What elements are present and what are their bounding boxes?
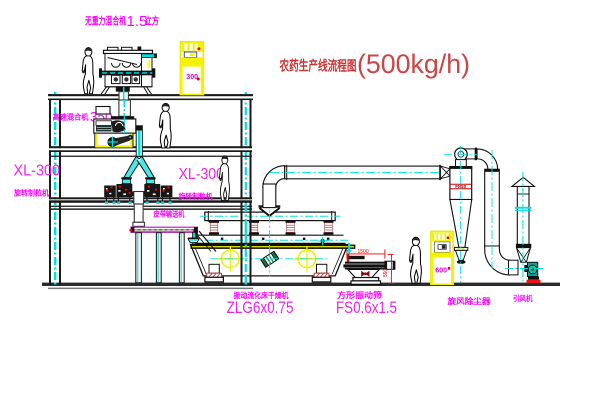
svg-text:旋风除尘器: 旋风除尘器 [446,296,491,306]
svg-text:XL-300: XL-300 [14,163,61,180]
svg-text:FS0.6x1.5: FS0.6x1.5 [336,299,397,317]
svg-text:(500kg/h): (500kg/h) [357,49,470,79]
svg-text:皮带输送机: 皮带输送机 [153,209,185,219]
svg-text:旋转制粒机: 旋转制粒机 [13,188,49,198]
svg-text:590: 590 [383,268,389,277]
svg-text:旋转制粒机: 旋转制粒机 [178,191,213,201]
svg-text:XL-300: XL-300 [179,166,225,183]
svg-text:立方: 立方 [145,15,160,28]
svg-text:农药生产线流程图: 农药生产线流程图 [279,58,357,74]
svg-text:1500: 1500 [358,249,369,255]
svg-text:ZLG6x0.75: ZLG6x0.75 [227,299,294,317]
svg-text:无重力混合机: 无重力混合机 [84,15,126,28]
svg-text:高速混合机: 高速混合机 [53,112,89,122]
svg-text:600: 600 [435,268,447,275]
svg-text:引风机: 引风机 [513,294,533,303]
svg-text:300: 300 [186,74,198,81]
